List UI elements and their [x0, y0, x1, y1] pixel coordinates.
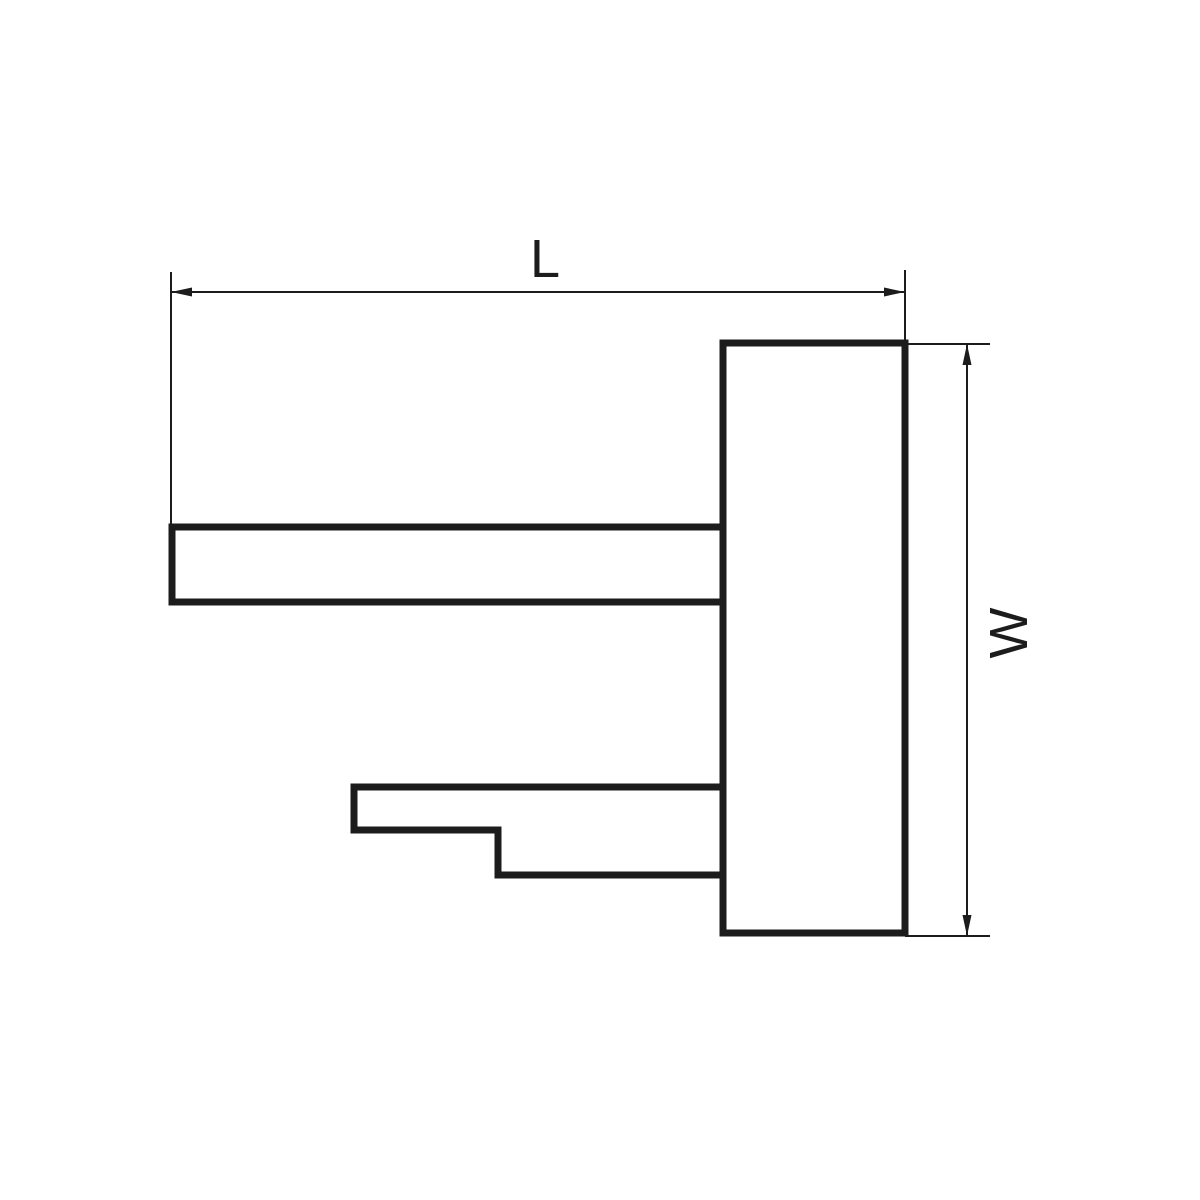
mount-plate [723, 343, 905, 933]
part-outline [172, 343, 905, 933]
arrowhead-down-icon [963, 915, 972, 936]
arrowhead-left-icon [171, 288, 192, 297]
dimension-width: W [905, 344, 1039, 936]
lower-stepped-arm [354, 787, 723, 875]
upper-arm [172, 527, 723, 602]
arrowhead-right-icon [884, 288, 905, 297]
dimension-length: L [171, 229, 905, 527]
drawing-canvas: L W [0, 0, 1200, 1200]
arrowhead-up-icon [963, 344, 972, 365]
technical-drawing: L W [0, 0, 1200, 1200]
length-label: L [530, 229, 560, 289]
width-label: W [979, 607, 1039, 658]
